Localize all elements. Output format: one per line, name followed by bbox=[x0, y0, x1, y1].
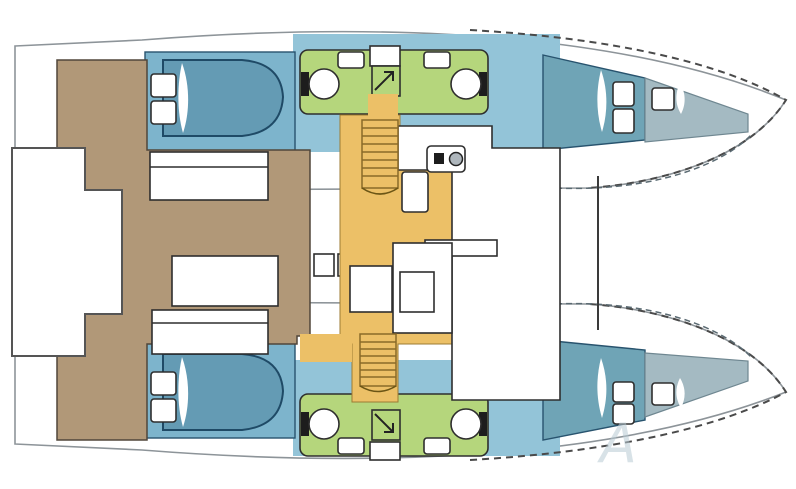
salon-table-top bbox=[400, 272, 434, 312]
bottom-head-sink-right bbox=[424, 438, 450, 454]
stove-burner-round bbox=[450, 153, 463, 166]
cockpit-bench-forward bbox=[152, 310, 268, 354]
stair-neck-top bbox=[368, 94, 398, 122]
bottom-head-bathroom bbox=[300, 394, 488, 460]
bottom-head-sink-left bbox=[338, 438, 364, 454]
watermark-letter: A bbox=[597, 412, 637, 475]
cockpit-bench-aft bbox=[150, 152, 268, 200]
top-aft-cabin-step-1 bbox=[151, 74, 176, 97]
bottom-aft-cabin-step-1 bbox=[151, 372, 176, 395]
stairs-bottom-hull bbox=[360, 334, 396, 392]
chart-table bbox=[350, 266, 392, 312]
bottom-aft-cabin-step-2 bbox=[151, 399, 176, 422]
top-shower-cell bbox=[372, 66, 400, 96]
stairs-top-hull bbox=[362, 120, 398, 194]
top-head-toilet-tank-left bbox=[301, 72, 309, 96]
cockpit-table bbox=[172, 256, 278, 306]
bottom-head-hatch bbox=[370, 442, 400, 460]
top-head-hatch bbox=[370, 46, 400, 66]
top-head-sink-right bbox=[424, 52, 450, 68]
bottom-head-toilet-tank-left bbox=[301, 412, 309, 436]
top-aft-cabin-step-2 bbox=[151, 101, 176, 124]
stove-burner-square bbox=[434, 153, 444, 164]
top-head-sink-left bbox=[338, 52, 364, 68]
bottom-head-toilet-left bbox=[309, 409, 339, 439]
bottom-forward-berth-step-1 bbox=[613, 382, 634, 402]
top-head-toilet-right bbox=[451, 69, 481, 99]
salon-door-step-1 bbox=[314, 254, 334, 276]
floorplan-stage: A bbox=[0, 0, 796, 489]
top-forward-berth-step-1 bbox=[613, 82, 634, 106]
cockpit-bench-aft-seat bbox=[150, 152, 268, 200]
bottom-head-toilet-right bbox=[451, 409, 481, 439]
galley-sink bbox=[402, 172, 428, 212]
top-forward-berth-step-2 bbox=[613, 109, 634, 133]
bottom-forepeak-hatch bbox=[652, 383, 674, 405]
top-head-toilet-left bbox=[309, 69, 339, 99]
stove-icon bbox=[427, 146, 465, 172]
top-forepeak-hatch bbox=[652, 88, 674, 110]
salon-floor-port-entry bbox=[300, 334, 352, 362]
top-aft-cabin bbox=[145, 52, 295, 152]
cockpit-bench-forward-seat bbox=[152, 310, 268, 354]
stairs-top-well bbox=[362, 120, 398, 188]
catamaran-floorplan: A bbox=[0, 0, 796, 489]
